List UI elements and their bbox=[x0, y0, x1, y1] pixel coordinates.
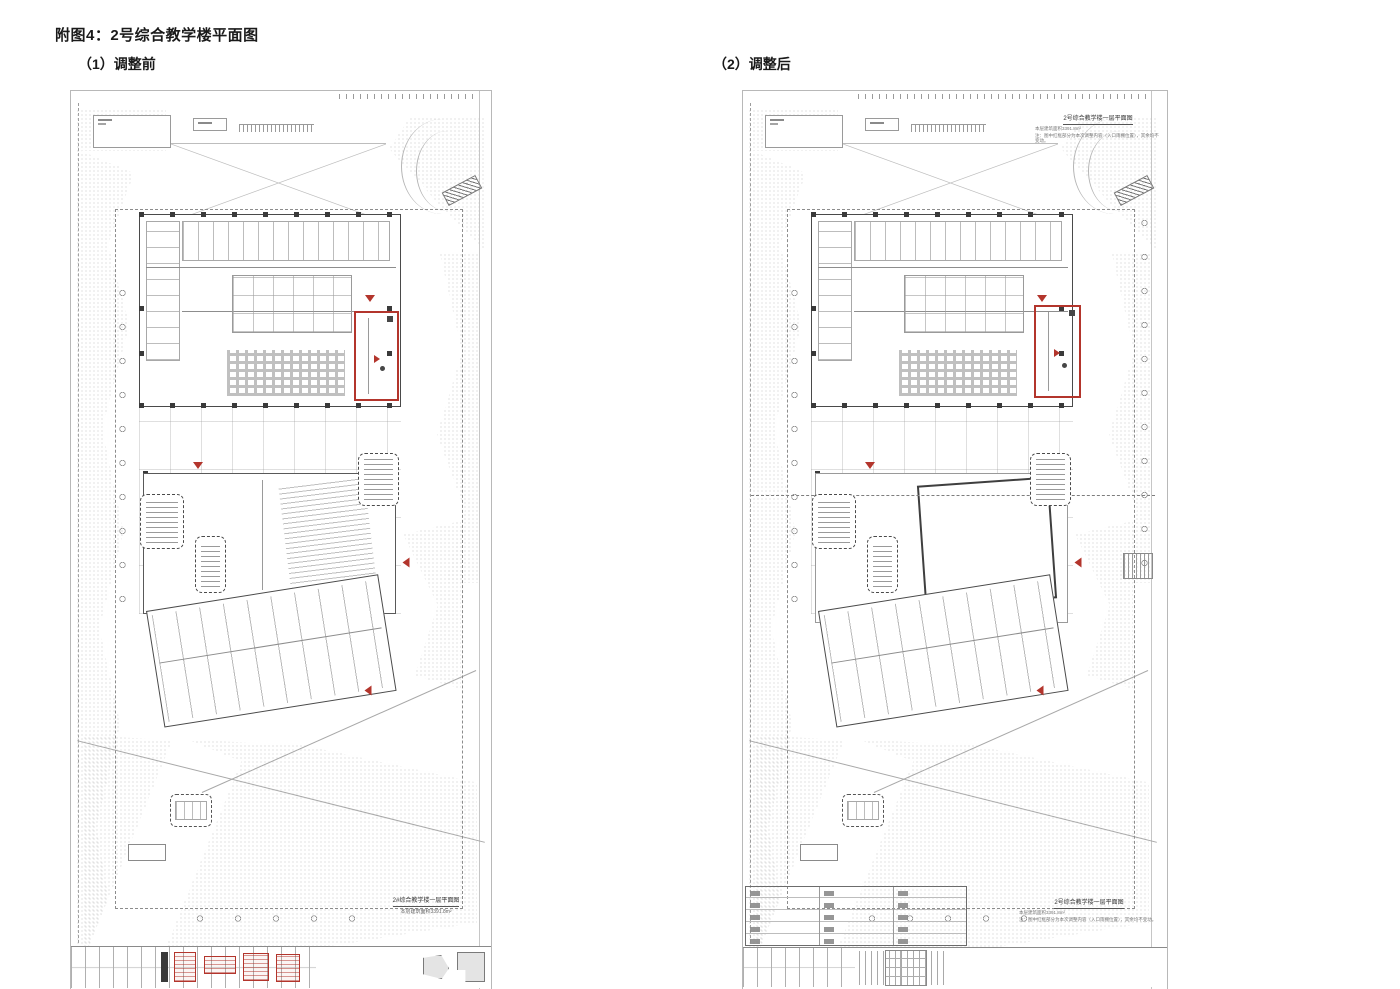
canopy-line bbox=[368, 318, 369, 394]
plan-caption-top: 2号综合教学楼一层平面图 本层建筑面积3391.8m² 注：图中红框部分为本次调… bbox=[1035, 107, 1161, 144]
title-block-columns bbox=[743, 948, 855, 987]
ancillary-structure bbox=[800, 844, 838, 861]
title-block bbox=[743, 947, 1167, 987]
stair-treads bbox=[873, 542, 892, 587]
entrance-marker-icon bbox=[1075, 558, 1082, 568]
title-block-table bbox=[885, 950, 927, 986]
column-marker bbox=[1062, 363, 1067, 368]
column-marker bbox=[380, 366, 385, 371]
entrance-marker-icon bbox=[365, 295, 375, 302]
floor-plan-after-sheet: 2号综合教学楼一层平面图 本层建筑面积3391.8m² 注：图中红框部分为本次调… bbox=[742, 90, 1168, 989]
ancillary-building bbox=[170, 794, 212, 827]
lobby-furniture-grid bbox=[227, 350, 345, 396]
seal-block bbox=[161, 952, 168, 982]
entrance-marker-icon bbox=[403, 558, 410, 568]
stair-treads bbox=[1036, 459, 1065, 500]
entrance-marker-icon bbox=[193, 462, 203, 469]
plan-caption-bottom: 2号综合教学楼一层平面图 本层建筑面积3391.8m² 注：图中红框部分为本次调… bbox=[1019, 891, 1159, 922]
plan-caption: 2#综合教学楼一层平面图 本层建筑面积3391.8m² bbox=[363, 889, 489, 915]
stamp-box bbox=[93, 115, 171, 148]
document-page: 附图4：2号综合教学楼平面图 （1）调整前 （2）调整后 bbox=[0, 0, 1400, 989]
tiny-text-bar bbox=[198, 122, 212, 124]
red-stamp bbox=[243, 953, 269, 981]
title-block bbox=[71, 946, 491, 988]
plan-caption-area: 本层建筑面积3391.8m² bbox=[1035, 126, 1161, 132]
room-block bbox=[232, 275, 352, 333]
legend-symbols bbox=[824, 890, 834, 944]
figure-title: 附图4：2号综合教学楼平面图 bbox=[55, 24, 259, 45]
tree-row bbox=[911, 124, 986, 132]
note-box bbox=[865, 118, 899, 131]
entrance-arrow-icon bbox=[1054, 349, 1060, 357]
plan-caption-note: 注：图中红框部分为本次调整内容（入口雨棚位置），其余均不变动。 bbox=[1035, 133, 1161, 144]
corridor-line bbox=[818, 267, 1068, 268]
legend-table bbox=[745, 886, 967, 946]
staircase bbox=[812, 494, 856, 549]
change-highlight-box bbox=[1034, 305, 1081, 398]
staircase bbox=[140, 494, 184, 549]
stair-treads bbox=[364, 459, 393, 500]
room-column bbox=[146, 221, 180, 361]
structural-columns bbox=[71, 91, 76, 96]
corridor-line bbox=[146, 267, 396, 268]
structural-columns bbox=[743, 91, 748, 96]
stair-treads bbox=[818, 500, 850, 543]
canopy-line bbox=[1048, 312, 1049, 391]
staircase bbox=[1030, 453, 1071, 506]
floor-plan-before-sheet: 2#综合教学楼一层平面图 本层建筑面积3391.8m² bbox=[70, 90, 492, 989]
change-highlight-box bbox=[354, 311, 399, 401]
plan-caption-area: 本层建筑面积3391.8m² bbox=[363, 909, 489, 915]
exterior-steps bbox=[1123, 553, 1153, 579]
entrance-marker-icon bbox=[365, 686, 372, 696]
entrance-marker-icon bbox=[865, 462, 875, 469]
room-row bbox=[854, 221, 1062, 261]
dimension-ticks bbox=[339, 94, 479, 99]
tiny-text-bar bbox=[770, 123, 778, 125]
plan-caption-title: 2号综合教学楼一层平面图 bbox=[1054, 900, 1123, 909]
tiny-text-bar bbox=[770, 119, 784, 121]
entrance-marker-icon bbox=[1037, 295, 1047, 302]
plan-caption-area: 本层建筑面积3391.8m² bbox=[1019, 910, 1159, 916]
tiny-text-bar bbox=[98, 123, 106, 125]
room-row bbox=[182, 221, 390, 261]
stair-treads bbox=[146, 500, 178, 543]
red-stamp bbox=[174, 952, 196, 982]
tiny-text-bar bbox=[870, 122, 884, 124]
staircase bbox=[358, 453, 399, 506]
staircase bbox=[867, 536, 898, 593]
column-marker bbox=[387, 316, 393, 322]
legend-symbols bbox=[898, 890, 908, 944]
red-stamp bbox=[204, 956, 236, 974]
ancillary-rooms bbox=[175, 801, 207, 820]
ancillary-rooms bbox=[847, 801, 879, 820]
tiny-text-bar bbox=[98, 119, 112, 121]
room-column bbox=[818, 221, 852, 361]
stair-treads bbox=[201, 542, 220, 587]
plan-caption-title: 2#综合教学楼一层平面图 bbox=[393, 898, 460, 907]
label-before: （1）调整前 bbox=[78, 54, 156, 74]
label-after: （2）调整后 bbox=[713, 54, 791, 74]
key-plan bbox=[423, 955, 449, 979]
stamp-box bbox=[765, 115, 843, 148]
grid-bubbles bbox=[791, 276, 798, 606]
note-box bbox=[193, 118, 227, 131]
room-block bbox=[904, 275, 1024, 333]
stage-line bbox=[262, 480, 263, 590]
entrance-arrow-icon bbox=[374, 355, 380, 363]
section-dashed-line bbox=[751, 495, 1155, 496]
key-plan bbox=[457, 952, 485, 982]
column-marker bbox=[1069, 310, 1075, 316]
plan-caption-note: 注：图中红框部分为本次调整内容（入口雨棚位置），其余均不变动。 bbox=[1019, 917, 1159, 923]
plan-caption-title: 2号综合教学楼一层平面图 bbox=[1063, 116, 1132, 125]
lobby-furniture-grid bbox=[899, 350, 1017, 396]
red-stamp bbox=[276, 954, 300, 982]
tree-row bbox=[239, 124, 314, 132]
entrance-marker-icon bbox=[1037, 686, 1044, 696]
legend-symbols bbox=[750, 890, 760, 944]
ancillary-structure bbox=[128, 844, 166, 861]
dimension-ticks bbox=[858, 94, 1151, 99]
staircase bbox=[195, 536, 226, 593]
grid-bubbles bbox=[1141, 206, 1148, 566]
grid-bubbles bbox=[119, 276, 126, 606]
ancillary-building bbox=[842, 794, 884, 827]
grid-bubbles bbox=[181, 915, 381, 922]
